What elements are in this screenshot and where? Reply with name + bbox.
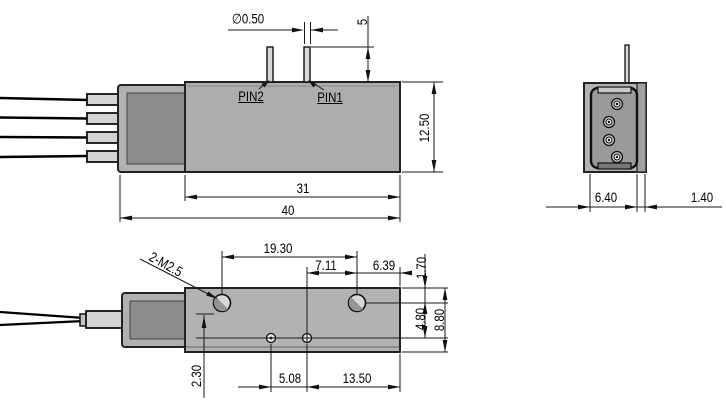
dim-overall-width: 8.80 xyxy=(431,309,447,331)
pin1-label: PIN1 xyxy=(317,89,343,105)
dim-end-body-width: 6.40 xyxy=(595,189,617,205)
end-cover-strip xyxy=(637,83,646,172)
main-body xyxy=(185,82,400,172)
dim-hole-row-to-centerline: 4.80 xyxy=(412,308,428,330)
top-ferrule xyxy=(86,311,122,328)
engineering-drawing-canvas: ∅0.50 5 PIN2 PIN1 12.50 31 40 6.40 1.40 … xyxy=(0,0,726,415)
dim-mount-hole-spacing: 19.30 xyxy=(264,240,293,256)
fiber-leads xyxy=(0,98,88,157)
dim-end-cover-width: 1.40 xyxy=(691,189,713,205)
dim-centerline-to-edge: 2.30 xyxy=(188,365,204,387)
dim-overall-length: 40 xyxy=(282,202,295,218)
drawing-linework xyxy=(0,0,726,415)
dim-small-hole-to-end: 13.50 xyxy=(343,370,372,386)
dim-edge-to-hole-row: 1.70 xyxy=(413,257,429,279)
side-view xyxy=(0,16,443,222)
fiber-ferrules xyxy=(87,94,121,162)
connector-block xyxy=(118,85,186,172)
pin2-label: PIN2 xyxy=(238,88,264,104)
dim-body-length: 31 xyxy=(297,180,310,196)
dim-pin-height-lines xyxy=(311,16,374,82)
end-top-bar xyxy=(598,87,631,93)
end-pin xyxy=(625,45,629,84)
dim-body-height: 12.50 xyxy=(416,114,432,143)
top-view xyxy=(0,251,448,398)
dim-mount-hole-to-edge: 6.39 xyxy=(373,257,395,273)
dim-small-hole-spacing: 5.08 xyxy=(279,370,301,386)
dim-pin-height: 5 xyxy=(354,19,370,25)
dim-small-to-mount-hole: 7.11 xyxy=(315,257,336,273)
top-fiber-leads xyxy=(0,312,84,325)
end-bottom-bar xyxy=(598,163,631,169)
electrical-pins xyxy=(267,47,310,82)
dim-length-lines xyxy=(120,175,400,222)
top-connector-block xyxy=(122,293,186,347)
dim-pin-diameter: ∅0.50 xyxy=(232,11,264,28)
end-view xyxy=(546,45,722,212)
